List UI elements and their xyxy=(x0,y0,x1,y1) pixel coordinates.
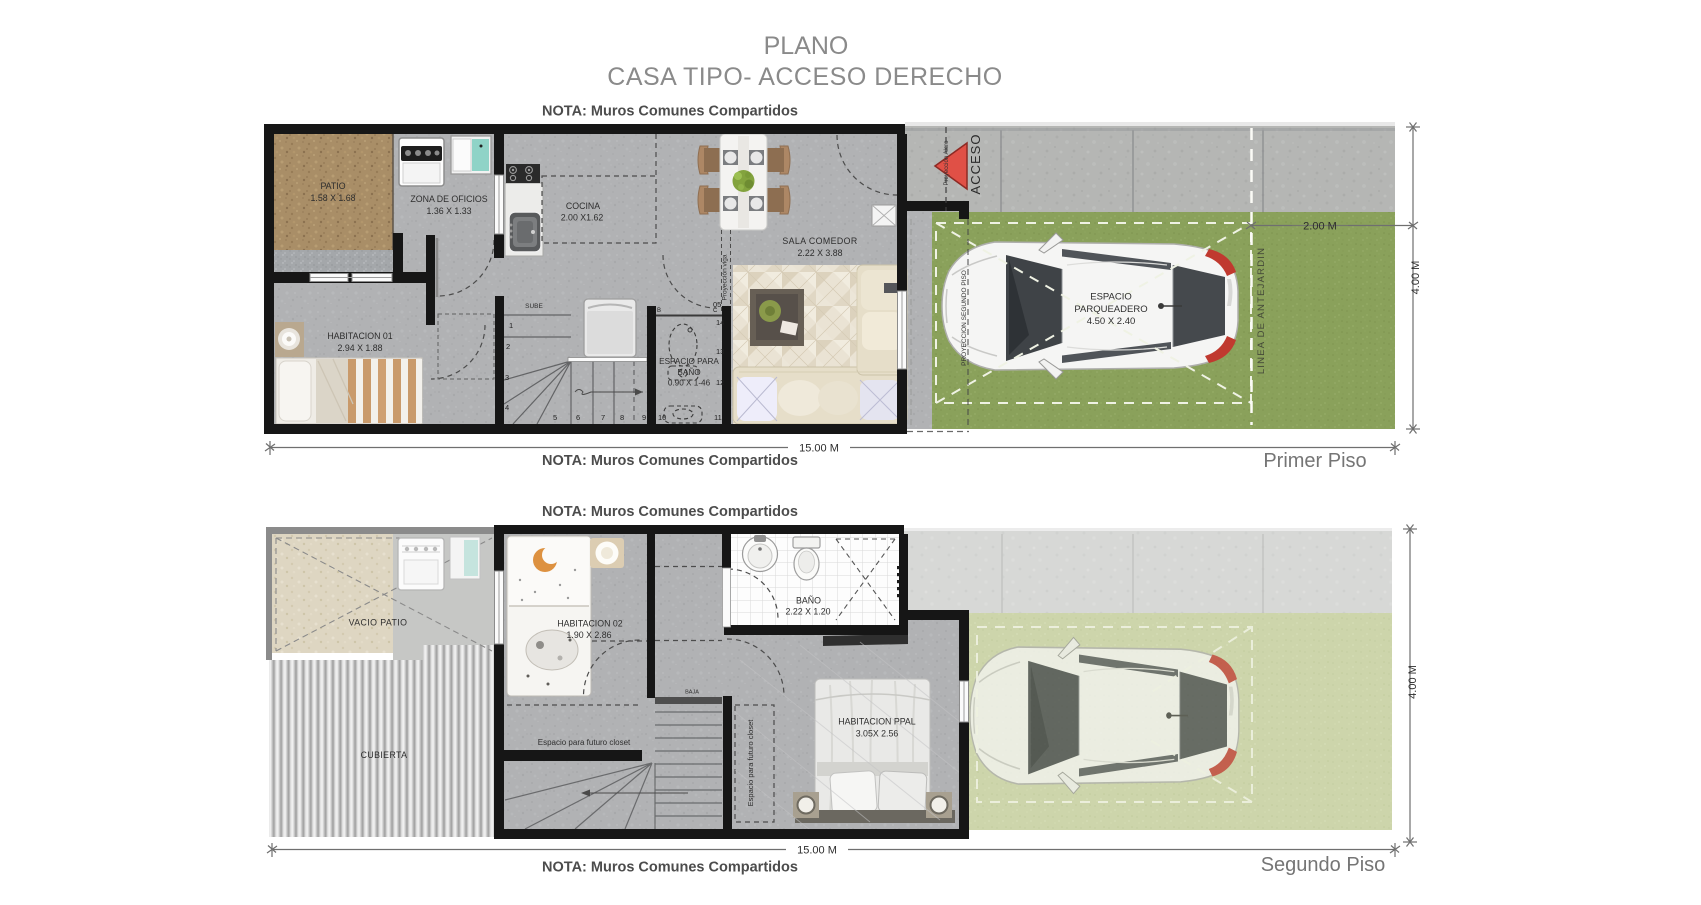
svg-text:2.22 X 1.20: 2.22 X 1.20 xyxy=(786,607,831,617)
svg-text:2: 2 xyxy=(506,342,510,351)
svg-text:1.90 X 2.86: 1.90 X 2.86 xyxy=(567,630,612,640)
svg-text:Proyección Alero: Proyección Alero xyxy=(944,140,950,186)
svg-text:2.00 X1.62: 2.00 X1.62 xyxy=(561,213,604,223)
svg-text:PATIO: PATIO xyxy=(320,181,345,191)
svg-text:SALA COMEDOR: SALA COMEDOR xyxy=(782,236,857,246)
svg-text:1.58 X 1.68: 1.58 X 1.68 xyxy=(311,193,356,203)
svg-text:CUBIERTA: CUBIERTA xyxy=(361,750,408,760)
svg-text:15.00 M: 15.00 M xyxy=(797,845,837,857)
svg-text:ESPACIO: ESPACIO xyxy=(1090,292,1132,303)
svg-text:6: 6 xyxy=(576,413,580,422)
svg-text:1: 1 xyxy=(509,321,513,330)
svg-text:ZONA DE OFICIOS: ZONA DE OFICIOS xyxy=(410,194,487,204)
svg-text:Espacio para futuro closet: Espacio para futuro closet xyxy=(746,719,755,807)
svg-text:C: C xyxy=(713,308,718,314)
svg-text:PLANO: PLANO xyxy=(764,32,849,60)
svg-text:BAJA: BAJA xyxy=(685,690,699,696)
svg-text:2.22 X 3.88: 2.22 X 3.88 xyxy=(798,248,843,258)
svg-text:15.00 M: 15.00 M xyxy=(799,443,839,455)
svg-text:4.00 M: 4.00 M xyxy=(1410,261,1422,295)
svg-text:ESPACIO PARA: ESPACIO PARA xyxy=(659,357,719,366)
svg-text:11: 11 xyxy=(714,413,722,422)
svg-text:BAÑO: BAÑO xyxy=(796,596,821,606)
svg-text:12: 12 xyxy=(716,378,724,387)
svg-text:Espacio para futuro closet: Espacio para futuro closet xyxy=(538,738,631,747)
svg-text:1.36 X 1.33: 1.36 X 1.33 xyxy=(427,206,472,216)
svg-text:3.05X 2.56: 3.05X 2.56 xyxy=(856,729,899,739)
svg-text:9: 9 xyxy=(642,413,646,422)
svg-text:2.00 M: 2.00 M xyxy=(1303,221,1337,233)
svg-text:COCINA: COCINA xyxy=(566,201,600,211)
svg-text:CASA TIPO- ACCESO DERECHO: CASA TIPO- ACCESO DERECHO xyxy=(607,63,1002,91)
svg-text:PROYECCION SEGUNDO PISO: PROYECCION SEGUNDO PISO xyxy=(961,270,968,366)
svg-text:HABITACION PPAL: HABITACION PPAL xyxy=(838,717,916,727)
svg-text:VACIO PATIO: VACIO PATIO xyxy=(349,618,408,628)
svg-text:LINEA DE ANTEJARDIN: LINEA DE ANTEJARDIN xyxy=(1256,247,1267,374)
svg-text:4.50 X 2.40: 4.50 X 2.40 xyxy=(1087,316,1136,327)
svg-text:4.00 M: 4.00 M xyxy=(1407,665,1419,699)
svg-text:Primer Piso: Primer Piso xyxy=(1263,450,1366,472)
svg-text:ACCESO: ACCESO xyxy=(968,134,983,195)
svg-text:NOTA: Muros Comunes Compartido: NOTA: Muros Comunes Compartidos xyxy=(542,504,798,520)
svg-text:3: 3 xyxy=(505,373,509,382)
svg-text:PARQUEADERO: PARQUEADERO xyxy=(1074,304,1147,315)
svg-text:7: 7 xyxy=(601,413,605,422)
svg-text:2.94 X 1.88: 2.94 X 1.88 xyxy=(338,343,383,353)
svg-text:NOTA: Muros Comunes Compartido: NOTA: Muros Comunes Compartidos xyxy=(542,453,798,469)
svg-text:4: 4 xyxy=(505,403,509,412)
svg-text:BAÑO: BAÑO xyxy=(677,367,700,377)
svg-text:5: 5 xyxy=(553,413,557,422)
svg-text:8: 8 xyxy=(620,413,624,422)
svg-text:14: 14 xyxy=(716,318,724,327)
svg-text:13: 13 xyxy=(716,347,724,356)
svg-text:0.90 X 1-46: 0.90 X 1-46 xyxy=(668,379,711,388)
svg-text:10: 10 xyxy=(658,413,666,422)
svg-text:SUBE: SUBE xyxy=(525,303,543,310)
svg-text:HABITACION 01: HABITACION 01 xyxy=(327,331,392,341)
svg-text:Segundo Piso: Segundo Piso xyxy=(1261,854,1386,876)
svg-text:HABITACION 02: HABITACION 02 xyxy=(557,619,622,629)
svg-text:Proyección viga: Proyección viga xyxy=(722,254,729,300)
svg-text:NOTA: Muros Comunes Compartido: NOTA: Muros Comunes Compartidos xyxy=(542,104,798,120)
svg-text:B: B xyxy=(657,308,661,314)
svg-text:NOTA: Muros Comunes Compartido: NOTA: Muros Comunes Compartidos xyxy=(542,860,798,876)
